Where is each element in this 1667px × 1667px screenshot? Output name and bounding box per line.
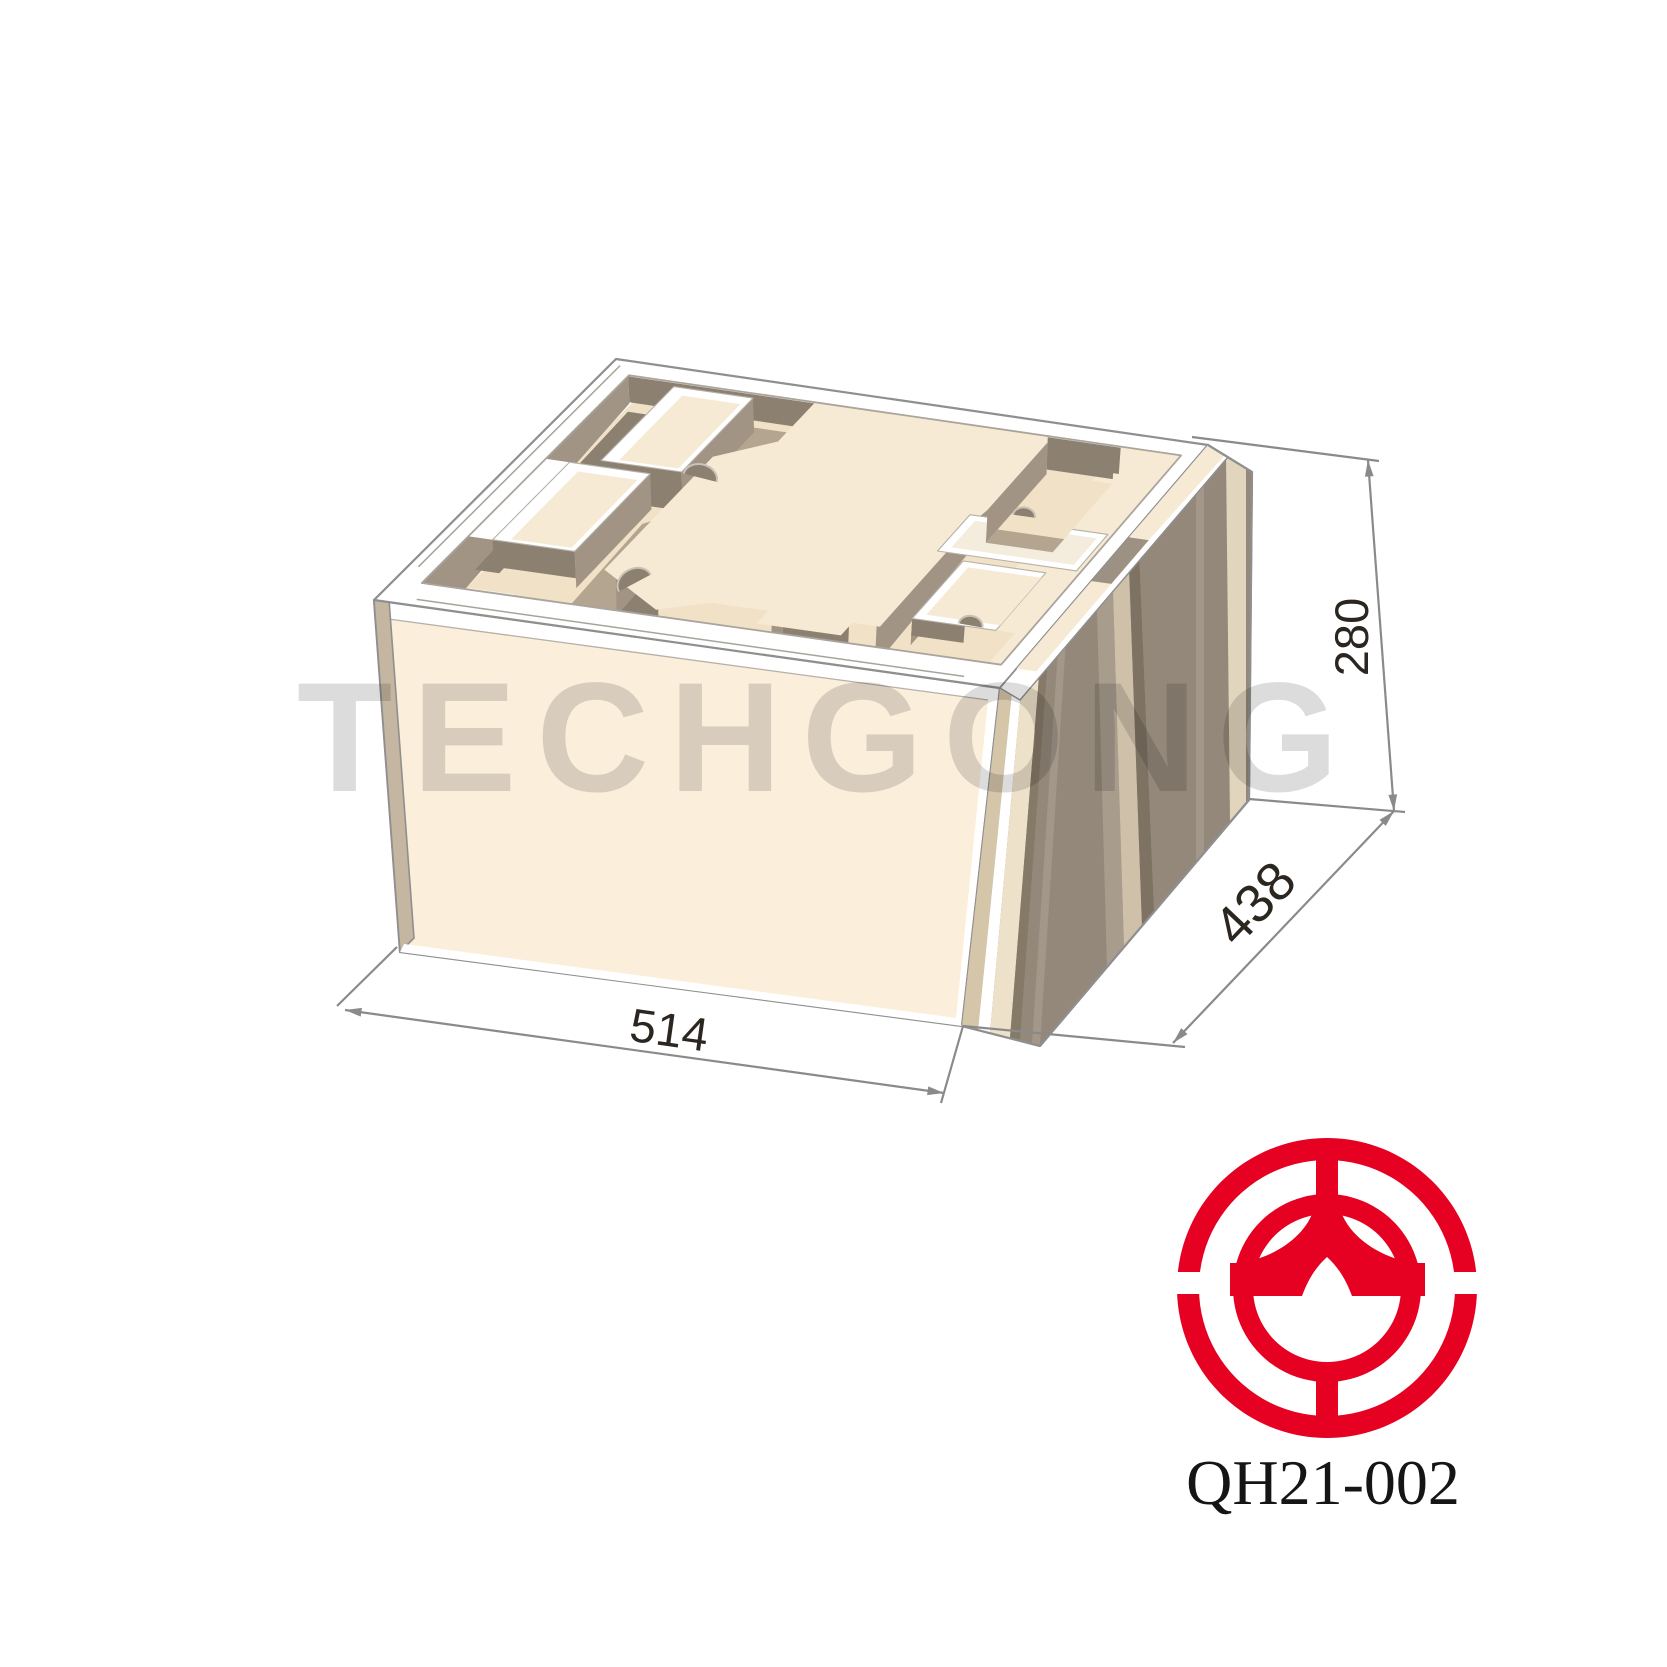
svg-text:514: 514: [627, 998, 712, 1061]
svg-text:QH21-002: QH21-002: [1186, 1447, 1460, 1518]
